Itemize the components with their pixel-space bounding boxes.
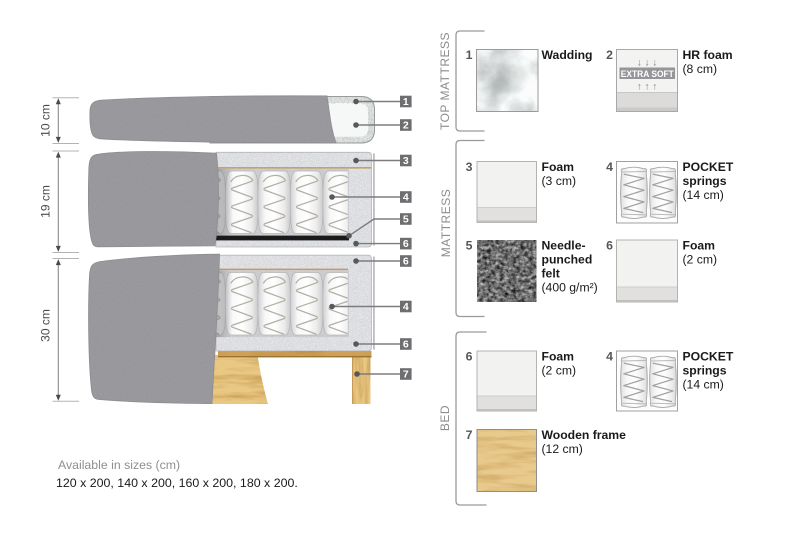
svg-text:Foam: Foam: [683, 239, 716, 253]
svg-text:(3 cm): (3 cm): [542, 174, 577, 188]
svg-text:2: 2: [403, 119, 409, 131]
svg-text:1: 1: [466, 48, 473, 62]
svg-text:HR foam: HR foam: [683, 48, 733, 62]
svg-text:POCKET: POCKET: [683, 160, 734, 174]
svg-text:Available in sizes (cm): Available in sizes (cm): [58, 458, 180, 472]
svg-text:(2 cm): (2 cm): [542, 364, 577, 378]
svg-text:Wooden frame: Wooden frame: [542, 428, 627, 442]
svg-text:5: 5: [466, 239, 473, 253]
svg-text:7: 7: [466, 428, 473, 442]
svg-text:MATTRESS: MATTRESS: [439, 189, 453, 257]
svg-text:felt: felt: [542, 267, 560, 281]
svg-text:19 cm: 19 cm: [39, 185, 53, 218]
svg-text:TOP MATTRESS: TOP MATTRESS: [438, 32, 452, 130]
svg-text:Foam: Foam: [542, 350, 575, 364]
svg-text:4: 4: [403, 191, 409, 203]
svg-text:2: 2: [606, 48, 613, 62]
svg-text:3: 3: [466, 160, 473, 174]
svg-text:30 cm: 30 cm: [39, 309, 53, 342]
svg-text:Needle-: Needle-: [542, 239, 586, 253]
svg-text:punched: punched: [542, 253, 593, 267]
svg-text:6: 6: [403, 338, 409, 350]
svg-text:3: 3: [403, 155, 409, 167]
svg-text:EXTRA SOFT: EXTRA SOFT: [621, 69, 674, 80]
svg-text:springs: springs: [683, 174, 727, 188]
svg-text:10 cm: 10 cm: [39, 104, 53, 137]
svg-text:4: 4: [403, 301, 409, 313]
svg-text:(2 cm): (2 cm): [683, 253, 718, 267]
svg-text:7: 7: [403, 368, 409, 380]
svg-text:(400 g/m²): (400 g/m²): [542, 281, 598, 295]
svg-text:Foam: Foam: [542, 160, 575, 174]
svg-text:↑ ↑ ↑: ↑ ↑ ↑: [637, 82, 658, 93]
svg-text:Wadding: Wadding: [542, 48, 593, 62]
svg-text:6: 6: [466, 350, 473, 364]
svg-text:↓ ↓ ↓: ↓ ↓ ↓: [637, 58, 658, 69]
svg-text:6: 6: [403, 238, 409, 250]
svg-text:4: 4: [606, 160, 613, 174]
svg-text:1: 1: [403, 96, 409, 108]
svg-text:6: 6: [606, 239, 613, 253]
svg-text:(8 cm): (8 cm): [683, 62, 718, 76]
svg-text:(14 cm): (14 cm): [683, 188, 724, 202]
svg-text:5: 5: [403, 213, 409, 225]
svg-text:POCKET: POCKET: [683, 350, 734, 364]
svg-text:120 x 200, 140 x 200, 160 x 20: 120 x 200, 140 x 200, 160 x 200, 180 x 2…: [56, 476, 298, 490]
svg-text:4: 4: [606, 350, 613, 364]
svg-text:BED: BED: [438, 405, 452, 431]
svg-text:6: 6: [403, 255, 409, 267]
svg-text:(14 cm): (14 cm): [683, 378, 724, 392]
svg-text:springs: springs: [683, 364, 727, 378]
svg-text:(12 cm): (12 cm): [542, 442, 583, 456]
